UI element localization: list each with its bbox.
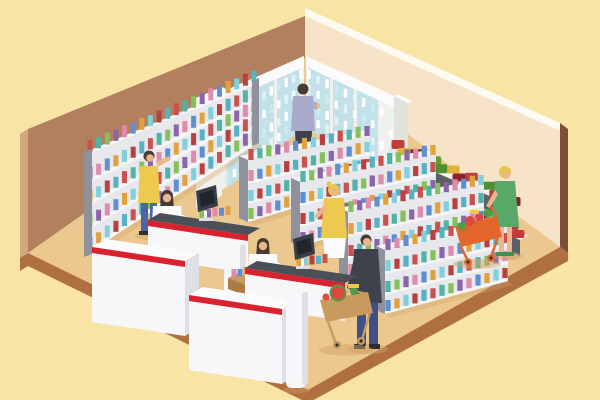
product-box bbox=[226, 130, 231, 142]
product-crate bbox=[447, 166, 460, 174]
product-box bbox=[421, 231, 426, 242]
hand bbox=[315, 214, 319, 218]
product-box bbox=[348, 245, 353, 256]
product-box bbox=[113, 155, 118, 166]
product-box bbox=[200, 129, 205, 140]
product-box bbox=[493, 270, 498, 281]
product-box bbox=[457, 280, 462, 291]
product-box bbox=[385, 281, 390, 292]
product-box bbox=[364, 142, 369, 152]
product-box bbox=[448, 226, 453, 236]
product-box bbox=[217, 120, 222, 131]
product-box bbox=[165, 168, 170, 179]
monitor-arm bbox=[301, 259, 304, 267]
product-box bbox=[385, 300, 390, 311]
produce-item bbox=[475, 213, 483, 221]
product-box bbox=[122, 214, 127, 226]
product-box bbox=[430, 230, 435, 240]
product-box bbox=[139, 118, 144, 130]
product-box bbox=[105, 133, 110, 145]
product-box bbox=[357, 200, 362, 210]
product-bottle bbox=[344, 89, 347, 98]
product-bottle bbox=[389, 113, 392, 121]
product-bottle bbox=[380, 141, 383, 150]
product-box bbox=[412, 275, 417, 285]
produce-item bbox=[465, 216, 475, 226]
product-box bbox=[413, 149, 418, 159]
product-box bbox=[131, 167, 136, 178]
product-box bbox=[275, 164, 280, 174]
product-box bbox=[257, 189, 262, 199]
product-box bbox=[243, 134, 248, 146]
product-box bbox=[394, 280, 399, 290]
product-bottle bbox=[389, 130, 392, 138]
face bbox=[163, 194, 171, 202]
product-box bbox=[275, 184, 280, 194]
product-box bbox=[409, 189, 414, 199]
product-box bbox=[96, 186, 101, 197]
product-box bbox=[448, 265, 453, 275]
supermarket-illustration bbox=[0, 0, 600, 400]
product-box bbox=[352, 180, 357, 191]
face bbox=[363, 238, 371, 246]
product-box bbox=[191, 151, 196, 163]
product-box bbox=[113, 199, 118, 210]
shoe bbox=[496, 252, 505, 256]
product-bottle bbox=[307, 70, 310, 79]
product-box bbox=[378, 156, 383, 166]
product-box bbox=[257, 169, 262, 179]
wheel-hub bbox=[467, 261, 470, 264]
product-bottle bbox=[362, 114, 365, 123]
product-box bbox=[284, 180, 289, 191]
product-box bbox=[191, 168, 196, 180]
product-box bbox=[200, 163, 205, 174]
product-box bbox=[165, 130, 170, 141]
produce-item bbox=[350, 287, 358, 295]
product-box bbox=[234, 126, 239, 137]
isometric-scene bbox=[0, 0, 600, 400]
product-box bbox=[385, 260, 390, 271]
product-box bbox=[309, 170, 314, 180]
product-bottle bbox=[353, 110, 356, 118]
product-box bbox=[430, 250, 435, 260]
product-box bbox=[208, 124, 213, 136]
product-box bbox=[426, 205, 431, 215]
product-box bbox=[502, 268, 507, 278]
product-box bbox=[422, 146, 427, 157]
product-bottle bbox=[362, 98, 365, 107]
product-box bbox=[243, 90, 248, 102]
product-box bbox=[217, 86, 222, 97]
product-bottle bbox=[292, 75, 295, 83]
product-box bbox=[430, 145, 435, 155]
product-box bbox=[248, 149, 253, 160]
product-box bbox=[344, 163, 349, 173]
product-box bbox=[344, 183, 349, 193]
product-box bbox=[478, 193, 483, 203]
product-box bbox=[293, 160, 298, 170]
product-box bbox=[226, 114, 231, 126]
product-box bbox=[217, 136, 222, 147]
product-box bbox=[387, 153, 392, 164]
product-box bbox=[320, 134, 325, 145]
product-box bbox=[139, 141, 144, 153]
product-box bbox=[131, 189, 136, 200]
wheel-hub bbox=[490, 257, 493, 260]
product-box bbox=[200, 147, 205, 158]
product-box bbox=[234, 141, 239, 152]
product-bottle bbox=[285, 112, 288, 121]
gondola-end-panel bbox=[291, 178, 300, 246]
produce-item bbox=[470, 210, 479, 214]
product-box bbox=[364, 126, 369, 136]
product-box bbox=[400, 190, 405, 201]
product-box bbox=[122, 150, 127, 162]
left-wall-side-edge bbox=[20, 129, 28, 258]
product-box bbox=[318, 188, 323, 199]
product-box bbox=[347, 130, 352, 140]
product-box bbox=[348, 223, 353, 234]
product-box bbox=[182, 139, 187, 150]
product-box bbox=[234, 96, 239, 107]
head bbox=[298, 84, 309, 95]
hair-bun bbox=[327, 182, 332, 187]
product-bottle bbox=[316, 76, 319, 84]
product-bottle bbox=[335, 101, 338, 109]
product-box bbox=[444, 201, 449, 211]
product-box bbox=[191, 133, 196, 145]
product-box bbox=[421, 272, 426, 283]
product-box bbox=[396, 152, 401, 162]
product-box bbox=[470, 194, 475, 205]
product-box bbox=[412, 293, 417, 303]
product-box bbox=[208, 157, 213, 169]
product-bottle bbox=[277, 83, 280, 91]
product-box bbox=[208, 140, 213, 152]
product-box bbox=[426, 186, 431, 196]
product-box bbox=[418, 207, 423, 218]
product-box bbox=[370, 157, 375, 168]
product-box bbox=[309, 191, 314, 201]
product-box bbox=[105, 204, 110, 216]
produce-item bbox=[484, 209, 493, 218]
product-box bbox=[357, 222, 362, 232]
product-box bbox=[257, 206, 262, 216]
product-box bbox=[418, 187, 423, 198]
product-box bbox=[421, 290, 426, 301]
product-box bbox=[430, 288, 435, 298]
product-box bbox=[435, 183, 440, 194]
product-bottle bbox=[335, 117, 338, 125]
product-box bbox=[266, 202, 271, 213]
product-crate bbox=[392, 140, 405, 149]
product-box bbox=[105, 226, 110, 238]
product-box bbox=[352, 160, 357, 171]
product-bottle bbox=[277, 100, 280, 108]
product-box bbox=[366, 219, 371, 230]
product-box bbox=[326, 167, 331, 177]
product-box bbox=[435, 202, 440, 213]
product-bottle bbox=[277, 118, 280, 126]
product-box bbox=[484, 273, 489, 283]
product-box bbox=[409, 210, 414, 220]
product-box bbox=[113, 130, 118, 141]
product-box bbox=[226, 99, 231, 111]
leg bbox=[141, 203, 148, 232]
product-crate bbox=[434, 164, 447, 173]
product-box bbox=[361, 159, 366, 169]
product-box bbox=[366, 197, 371, 208]
product-box bbox=[208, 88, 213, 100]
product-box bbox=[182, 175, 187, 186]
product-box bbox=[226, 206, 231, 215]
product-box bbox=[105, 159, 110, 171]
product-bottle bbox=[380, 107, 383, 116]
product-box bbox=[182, 157, 187, 168]
product-box bbox=[448, 283, 453, 293]
shadow bbox=[319, 345, 373, 356]
product-box bbox=[461, 179, 466, 189]
product-box bbox=[122, 125, 127, 137]
shelf-end-panel bbox=[252, 78, 259, 146]
product-box bbox=[200, 113, 205, 124]
product-box bbox=[257, 148, 262, 158]
product-box bbox=[300, 213, 305, 224]
product-bottle bbox=[344, 105, 347, 114]
product-box bbox=[182, 101, 187, 112]
product-box bbox=[105, 181, 110, 193]
product-box bbox=[356, 143, 361, 154]
product-box bbox=[439, 247, 444, 258]
product-box bbox=[461, 197, 466, 207]
product-box bbox=[122, 193, 127, 205]
product-box bbox=[370, 176, 375, 187]
product-box bbox=[323, 254, 328, 263]
product-box bbox=[387, 171, 392, 182]
product-box bbox=[113, 221, 118, 232]
product-box bbox=[412, 234, 417, 244]
product-bottle bbox=[326, 79, 329, 88]
product-box bbox=[174, 180, 179, 192]
product-box bbox=[470, 176, 475, 187]
product-box bbox=[400, 211, 405, 222]
shoe bbox=[139, 231, 148, 235]
product-box bbox=[310, 256, 315, 265]
product-box bbox=[191, 116, 196, 128]
product-box bbox=[266, 145, 271, 156]
product-box bbox=[439, 267, 444, 278]
product-box bbox=[394, 238, 399, 248]
product-bottle bbox=[371, 104, 374, 112]
product-box bbox=[302, 138, 307, 149]
product-box bbox=[311, 137, 316, 147]
product-box bbox=[217, 104, 222, 115]
product-box bbox=[96, 137, 101, 148]
product-bottle bbox=[335, 85, 338, 93]
leg bbox=[507, 227, 512, 253]
product-bottle bbox=[371, 137, 374, 145]
product-box bbox=[335, 164, 340, 175]
product-box bbox=[302, 157, 307, 168]
product-box bbox=[96, 210, 101, 221]
product-bottle bbox=[225, 174, 228, 183]
product-box bbox=[174, 161, 179, 173]
product-bottle bbox=[270, 104, 273, 113]
product-box bbox=[248, 170, 253, 181]
product-box bbox=[191, 96, 196, 108]
product-box bbox=[383, 194, 388, 205]
product-box bbox=[338, 148, 343, 159]
product-box bbox=[238, 269, 243, 276]
product-box bbox=[378, 174, 383, 184]
wheel-hub bbox=[335, 343, 338, 346]
product-box bbox=[131, 147, 136, 158]
product-box bbox=[403, 235, 408, 246]
product-box bbox=[404, 167, 409, 178]
watermelon bbox=[331, 286, 344, 299]
product-bottle bbox=[299, 70, 302, 79]
product-box bbox=[452, 198, 457, 209]
product-box bbox=[475, 275, 480, 286]
product-box bbox=[300, 171, 305, 182]
gondola-end-panel bbox=[239, 156, 248, 222]
product-box bbox=[96, 164, 101, 175]
product-box bbox=[232, 269, 237, 277]
product-box bbox=[131, 123, 136, 134]
product-box bbox=[422, 163, 427, 174]
product-box bbox=[165, 108, 170, 119]
product-box bbox=[284, 197, 289, 208]
product-box bbox=[213, 208, 218, 217]
product-box bbox=[430, 162, 435, 172]
product-box bbox=[275, 145, 280, 155]
product-box bbox=[374, 197, 379, 207]
product-box bbox=[208, 107, 213, 119]
product-box bbox=[320, 152, 325, 163]
product-box bbox=[182, 121, 187, 132]
product-box bbox=[430, 270, 435, 280]
product-bottle bbox=[277, 133, 280, 141]
product-box bbox=[122, 171, 127, 183]
produce-item bbox=[323, 294, 330, 301]
product-box bbox=[338, 131, 343, 142]
shelf-end-panel bbox=[84, 149, 92, 257]
product-box bbox=[293, 141, 298, 151]
product-bottle bbox=[262, 92, 265, 100]
product-bottle bbox=[353, 94, 356, 102]
product-box bbox=[243, 74, 248, 86]
face bbox=[502, 171, 510, 179]
face bbox=[331, 188, 339, 196]
product-box bbox=[148, 115, 153, 126]
product-box bbox=[383, 215, 388, 226]
product-bottle bbox=[270, 86, 273, 95]
product-bottle bbox=[326, 111, 329, 120]
product-box bbox=[403, 295, 408, 306]
product-crate bbox=[512, 230, 525, 238]
monitor-base bbox=[199, 218, 213, 221]
product-bottle bbox=[285, 126, 288, 135]
product-box bbox=[174, 143, 179, 155]
product-bottle bbox=[285, 78, 288, 87]
face bbox=[146, 154, 154, 162]
product-bottle bbox=[326, 95, 329, 104]
apron bbox=[138, 166, 160, 203]
product-box bbox=[174, 124, 179, 136]
product-bottle bbox=[371, 120, 374, 128]
hand bbox=[316, 104, 320, 108]
product-box bbox=[243, 105, 248, 117]
product-box bbox=[452, 179, 457, 190]
product-box bbox=[403, 256, 408, 267]
product-box bbox=[329, 133, 334, 143]
product-box bbox=[243, 119, 248, 131]
product-box bbox=[412, 255, 417, 265]
product-box bbox=[311, 155, 316, 165]
product-bottle bbox=[380, 124, 383, 133]
product-box bbox=[439, 285, 444, 296]
product-box bbox=[284, 142, 289, 153]
product-box bbox=[248, 190, 253, 201]
face bbox=[259, 242, 267, 250]
product-box bbox=[403, 276, 408, 287]
product-bottle bbox=[233, 169, 236, 177]
product-box bbox=[157, 133, 162, 145]
product-box bbox=[361, 179, 366, 189]
product-box bbox=[309, 212, 314, 222]
product-bottle bbox=[285, 95, 288, 104]
product-box bbox=[200, 93, 205, 104]
product-box bbox=[385, 239, 390, 250]
gate-pillar-2-side bbox=[302, 292, 308, 385]
product-box bbox=[266, 166, 271, 177]
produce-item bbox=[348, 284, 359, 288]
product-box bbox=[444, 182, 449, 192]
top bbox=[321, 198, 347, 238]
monitor-base bbox=[296, 266, 310, 269]
right-wall-side-edge bbox=[560, 123, 568, 253]
product-box bbox=[234, 111, 239, 122]
product-box bbox=[396, 170, 401, 180]
product-box bbox=[448, 246, 453, 256]
product-bottle bbox=[316, 120, 319, 128]
product-box bbox=[478, 175, 483, 185]
product-box bbox=[275, 201, 280, 211]
product-box bbox=[348, 201, 353, 212]
product-box bbox=[316, 256, 321, 264]
product-box bbox=[300, 192, 305, 203]
product-box bbox=[248, 208, 253, 219]
product-box bbox=[226, 145, 231, 157]
product-box bbox=[318, 167, 323, 178]
product-box bbox=[404, 149, 409, 160]
product-box bbox=[113, 177, 118, 188]
product-box bbox=[96, 232, 101, 243]
monitor-arm bbox=[204, 211, 207, 219]
product-crate bbox=[483, 182, 496, 190]
product-box bbox=[234, 78, 239, 89]
product-box bbox=[157, 111, 162, 123]
product-box bbox=[394, 299, 399, 309]
product-box bbox=[421, 251, 426, 262]
product-box bbox=[413, 166, 418, 176]
product-bottle bbox=[316, 91, 319, 99]
wheel-hub bbox=[359, 339, 362, 342]
product-box bbox=[217, 152, 222, 163]
product-box bbox=[226, 81, 231, 93]
product-box bbox=[284, 161, 289, 172]
